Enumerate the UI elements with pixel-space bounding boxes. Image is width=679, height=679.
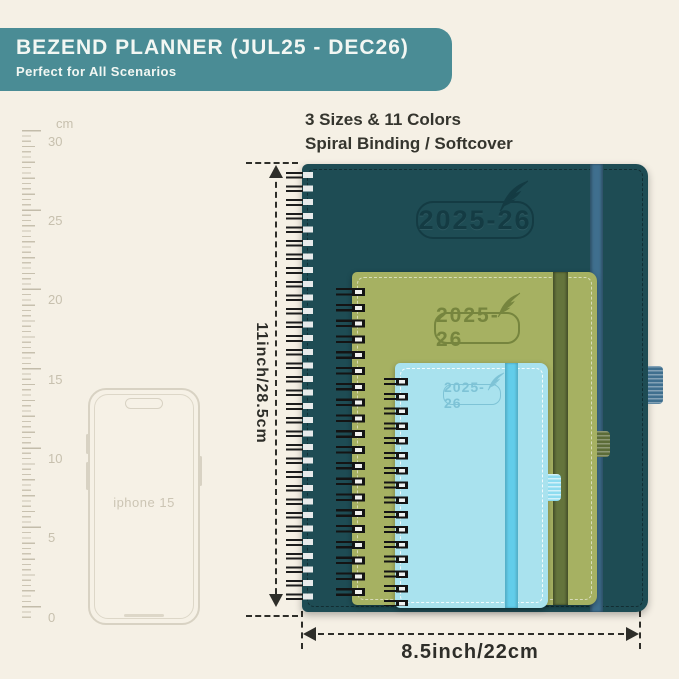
planner-small: 2025-26 [395,363,548,608]
ruler-major-ticks [22,130,41,620]
phone-bottom-port [124,614,164,617]
page-title: BEZEND PLANNER (JUL25 - DEC26) [16,36,452,60]
height-dimension-line [275,172,277,604]
spiral-binding-medium [336,288,352,604]
height-dimension-cap-top [246,162,298,164]
year-badge-small: 2025-26 [443,384,501,405]
phone-camera-island [125,398,163,409]
width-dimension-label: 8.5inch/22cm [370,641,570,664]
year-badge-medium: 2025-26 [434,312,520,344]
feature-line-sizes: 3 Sizes & 11 Colors [305,108,513,132]
feature-line-binding: Spiral Binding / Softcover [305,132,513,156]
height-dimension-label: 11inch/28.5cm [252,283,270,483]
arrow-left-icon [303,627,316,641]
spiral-binding-large [286,172,303,602]
pen-loop-large [648,366,663,404]
spiral-binding-small [384,378,396,606]
pen-loop-medium [597,431,610,457]
width-dimension-cap-right [639,611,641,649]
phone-outline: iphone 15 [88,388,200,625]
year-badge-large: 2025-26 [416,201,534,239]
header-subtitle: Perfect for All Scenarios [16,64,452,79]
ruler-label: 25 [48,213,74,228]
product-image: BEZEND PLANNER (JUL25 - DEC26) Perfect f… [0,0,679,679]
elastic-band-medium [553,272,568,605]
ruler-label: 15 [48,372,74,387]
elastic-band-small [505,363,518,608]
ruler-label: 30 [48,134,74,149]
phone-side-button [199,456,202,486]
phone-side-button [86,434,89,454]
phone-side-button [86,462,89,490]
ruler-label: 20 [48,292,74,307]
spiral-binding-medium-holes [355,290,362,604]
spiral-binding-large-holes [303,172,313,602]
pen-loop-small [548,474,561,501]
arrow-down-icon [269,594,283,607]
ruler-label: 10 [48,451,74,466]
ruler-label: 5 [48,530,74,545]
spiral-binding-small-holes [399,380,405,606]
arrow-right-icon [626,627,639,641]
arrow-up-icon [269,165,283,178]
ruler-label: 0 [48,610,74,625]
header-banner: BEZEND PLANNER (JUL25 - DEC26) Perfect f… [0,28,452,91]
ruler-unit-label: cm [56,116,73,131]
width-dimension-line [308,633,634,635]
height-dimension-cap-bottom [246,615,298,617]
feature-text: 3 Sizes & 11 Colors Spiral Binding / Sof… [305,108,513,156]
phone-label: iphone 15 [90,495,198,510]
